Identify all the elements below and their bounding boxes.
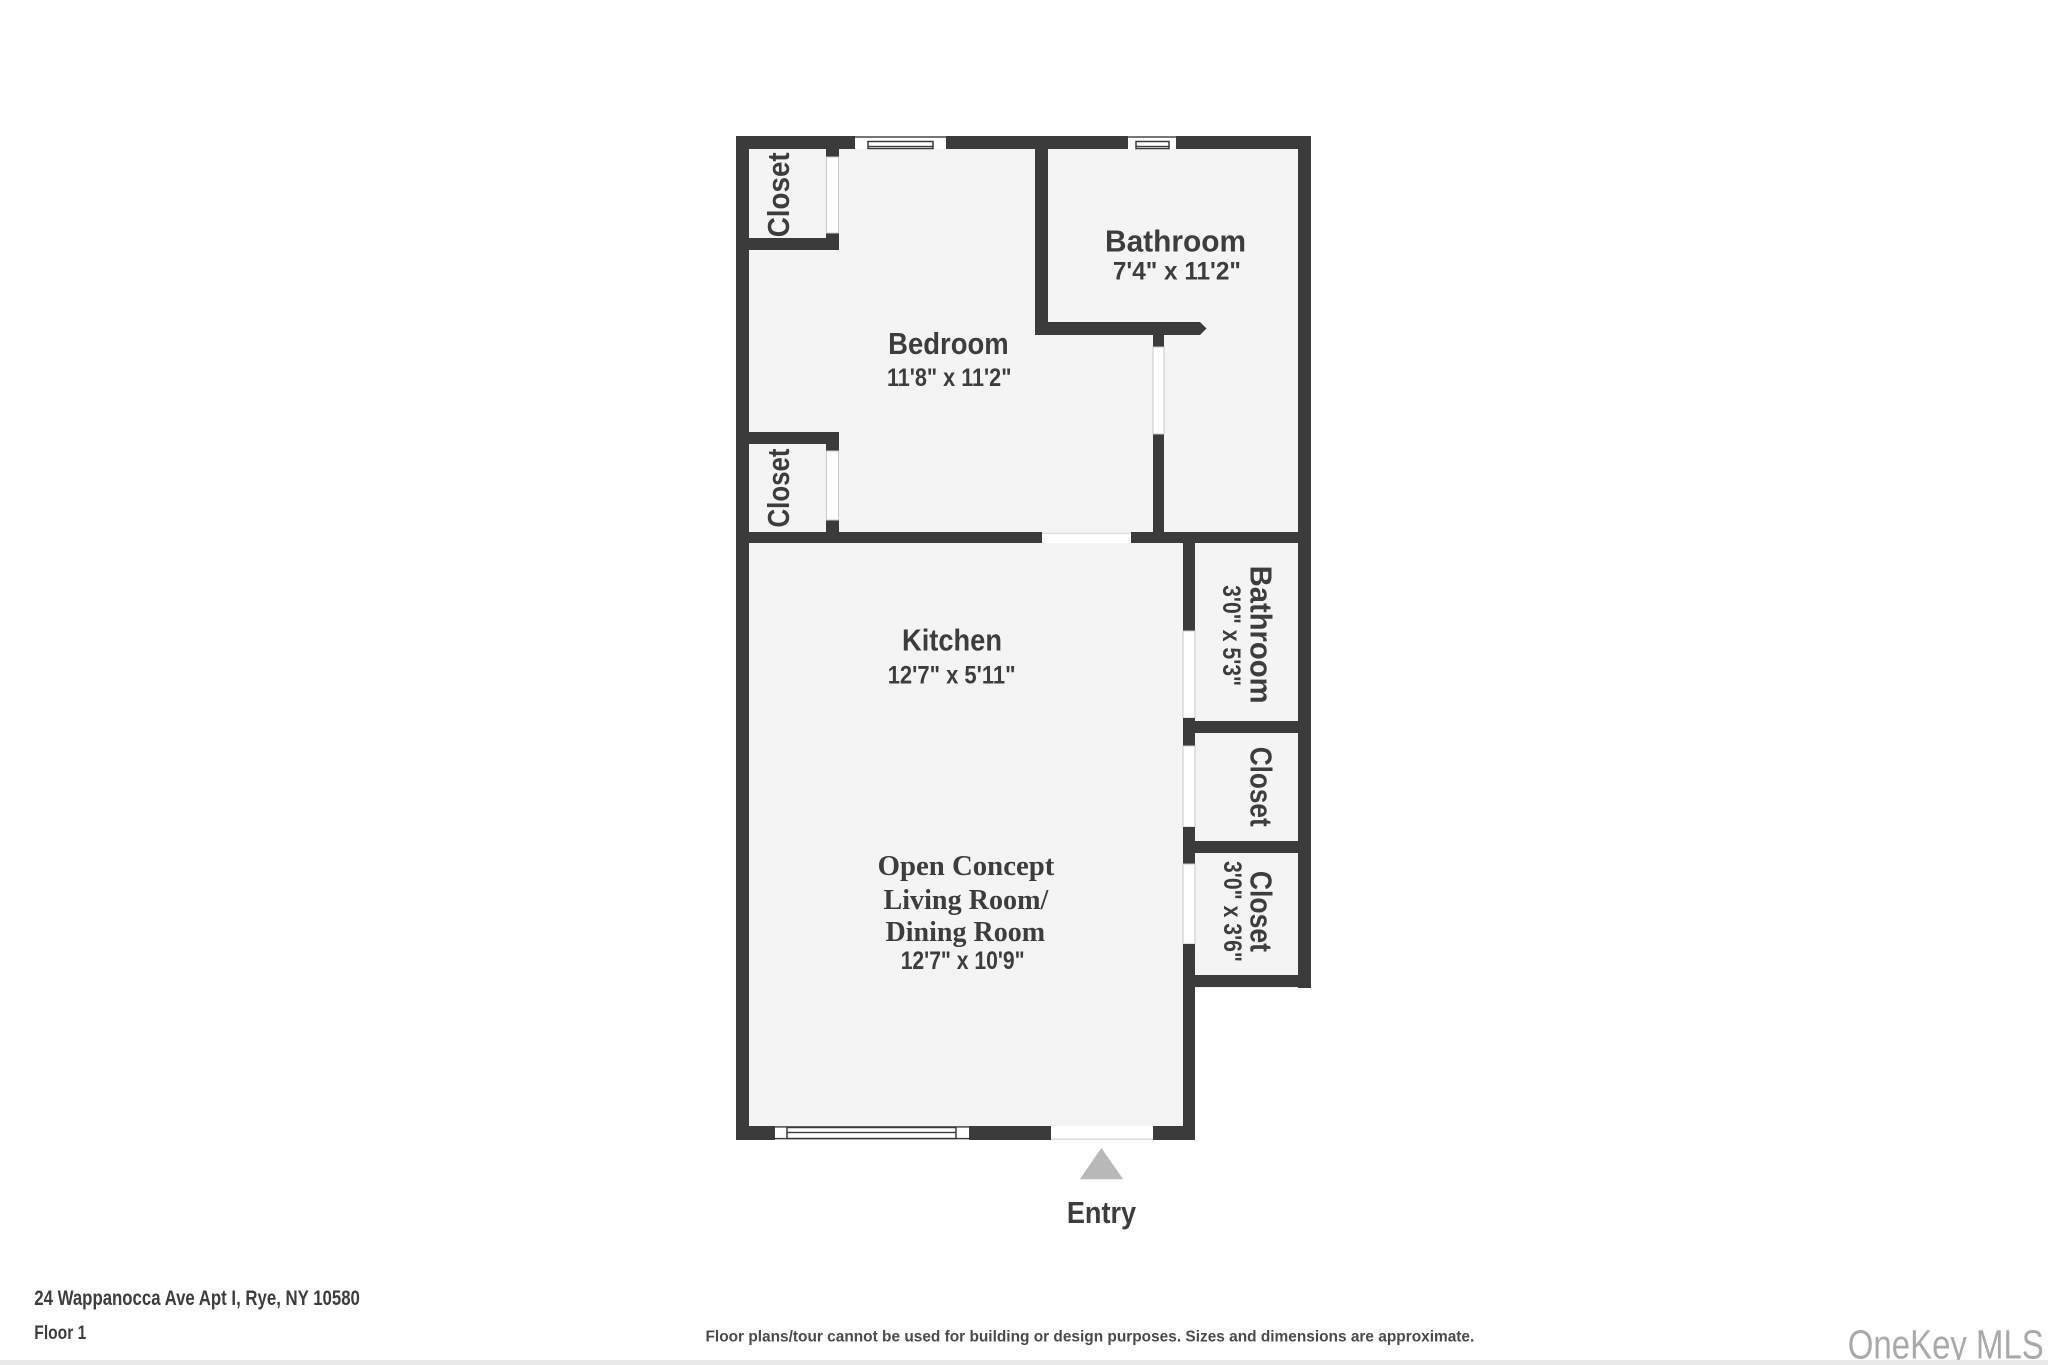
svg-text:24 Wappanocca Ave Apt I, Rye,: 24 Wappanocca Ave Apt I, Rye, NY 10580 xyxy=(34,1286,360,1310)
svg-text:Bedroom: Bedroom xyxy=(888,327,1009,361)
svg-text:12'7" x 10'9": 12'7" x 10'9" xyxy=(901,947,1025,975)
svg-text:Living Room/: Living Room/ xyxy=(884,884,1050,916)
svg-text:7'4" x 11'2": 7'4" x 11'2" xyxy=(1113,258,1241,286)
svg-text:Closet: Closet xyxy=(762,152,796,237)
svg-text:Bathroom: Bathroom xyxy=(1244,566,1278,704)
svg-text:Floor 1: Floor 1 xyxy=(34,1322,86,1344)
svg-text:Closet: Closet xyxy=(1244,747,1278,827)
svg-text:12'7" x 5'11": 12'7" x 5'11" xyxy=(888,661,1016,689)
svg-text:Kitchen: Kitchen xyxy=(902,624,1002,658)
svg-text:Dining Room: Dining Room xyxy=(886,916,1046,948)
svg-text:Closet: Closet xyxy=(762,449,796,528)
svg-text:Open Concept: Open Concept xyxy=(878,850,1055,882)
svg-text:3'0" x 3'6": 3'0" x 3'6" xyxy=(1218,861,1246,962)
svg-text:Bathroom: Bathroom xyxy=(1105,225,1246,259)
svg-text:11'8" x 11'2": 11'8" x 11'2" xyxy=(887,364,1012,392)
svg-text:Floor plans/tour cannot be use: Floor plans/tour cannot be used for buil… xyxy=(706,1329,1475,1346)
svg-text:OneKey MLS: OneKey MLS xyxy=(1848,1322,2044,1365)
svg-text:3'0" x 5'3": 3'0" x 5'3" xyxy=(1217,585,1245,686)
svg-text:Entry: Entry xyxy=(1067,1196,1136,1230)
svg-text:Closet: Closet xyxy=(1244,871,1278,952)
